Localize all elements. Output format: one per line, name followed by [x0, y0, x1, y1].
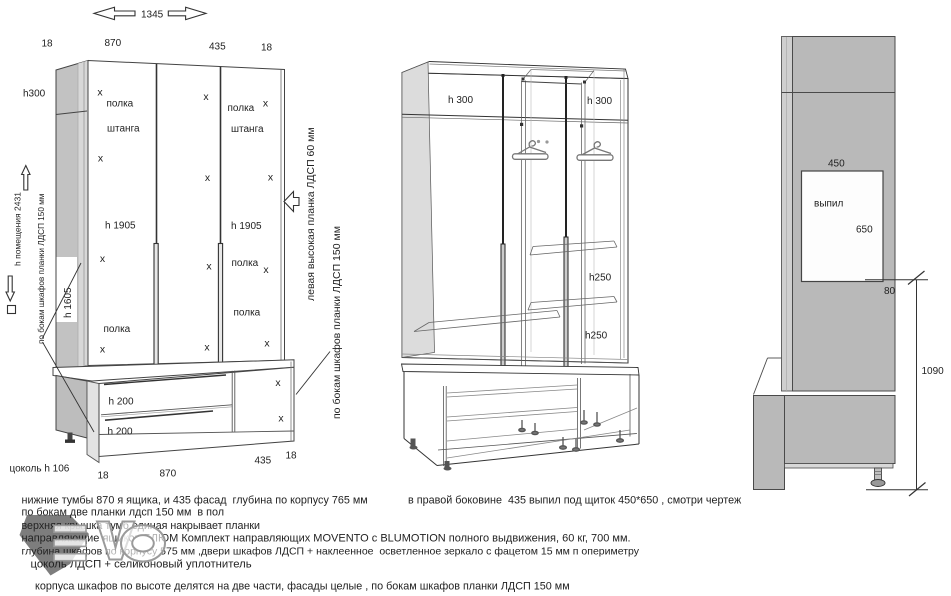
svg-text:x: x — [275, 377, 281, 389]
svg-text:штанга: штанга — [231, 124, 264, 135]
svg-text:по бокам шкафов планки ЛДСП 15: по бокам шкафов планки ЛДСП 150 мм — [331, 226, 343, 419]
svg-text:1345: 1345 — [141, 10, 164, 21]
svg-text:h250: h250 — [585, 331, 608, 342]
svg-text:870: 870 — [105, 38, 122, 49]
svg-text:h 1605: h 1605 — [63, 287, 74, 318]
svg-text:18: 18 — [261, 43, 273, 54]
svg-text:1090: 1090 — [922, 366, 945, 377]
svg-text:h 300: h 300 — [448, 95, 473, 106]
svg-text:h 200: h 200 — [108, 427, 133, 438]
svg-text:450: 450 — [828, 159, 845, 170]
svg-text:по бокам две планки лдсп 150 м: по бокам две планки лдсп 150 мм в пол — [22, 507, 225, 519]
svg-text:650: 650 — [856, 225, 873, 236]
svg-text:18: 18 — [42, 39, 54, 50]
svg-text:полка: полка — [107, 99, 134, 110]
svg-text:870: 870 — [160, 469, 177, 480]
svg-text:по бокам шкафов планки ЛДСП 15: по бокам шкафов планки ЛДСП 150 мм — [37, 193, 46, 344]
svg-text:x: x — [206, 261, 212, 273]
svg-text:435: 435 — [255, 456, 272, 467]
svg-text:x: x — [204, 342, 210, 354]
svg-text:x: x — [97, 87, 103, 99]
svg-text:x: x — [98, 153, 104, 165]
svg-text:h 1905: h 1905 — [105, 221, 136, 232]
svg-text:18: 18 — [98, 471, 110, 482]
svg-text:h 1905: h 1905 — [231, 221, 262, 232]
svg-text:выпил: выпил — [814, 199, 844, 210]
svg-text:18: 18 — [286, 451, 298, 462]
svg-text:x: x — [264, 338, 270, 350]
svg-text:h250: h250 — [589, 273, 612, 284]
svg-text:h 200: h 200 — [109, 397, 134, 408]
svg-text:435: 435 — [209, 42, 226, 53]
svg-text:x: x — [263, 264, 269, 276]
svg-text:цоколь h 106: цоколь h 106 — [10, 464, 70, 475]
svg-text:x: x — [203, 91, 209, 103]
svg-text:левая высокая планка ЛДСП 60 м: левая высокая планка ЛДСП 60 мм — [305, 127, 317, 301]
svg-text:x: x — [100, 253, 106, 265]
svg-text:80: 80 — [884, 286, 896, 297]
svg-text:h300: h300 — [23, 89, 46, 100]
svg-text:x: x — [205, 172, 211, 184]
svg-text:корпуса шкафов по высоте делят: корпуса шкафов по высоте делятся на две … — [35, 581, 570, 593]
svg-text:нижние тумбы 870 я ящика, и 43: нижние тумбы 870 я ящика, и 435 фасад гл… — [22, 495, 368, 507]
svg-text:h 300: h 300 — [587, 96, 612, 107]
svg-text:полка: полка — [234, 308, 261, 319]
svg-text:x: x — [263, 98, 269, 110]
svg-text:штанга: штанга — [107, 124, 140, 135]
svg-text:полка: полка — [228, 103, 255, 114]
svg-text:x: x — [100, 344, 106, 356]
svg-text:x: x — [278, 413, 284, 425]
svg-text:полка: полка — [232, 258, 259, 269]
svg-text:x: x — [268, 172, 274, 184]
svg-text:h помещения 2431: h помещения 2431 — [13, 192, 23, 266]
svg-text:полка: полка — [104, 324, 131, 335]
svg-text:в правой боковине 435 выпил п: в правой боковине 435 выпил под щиток 45… — [408, 495, 742, 507]
